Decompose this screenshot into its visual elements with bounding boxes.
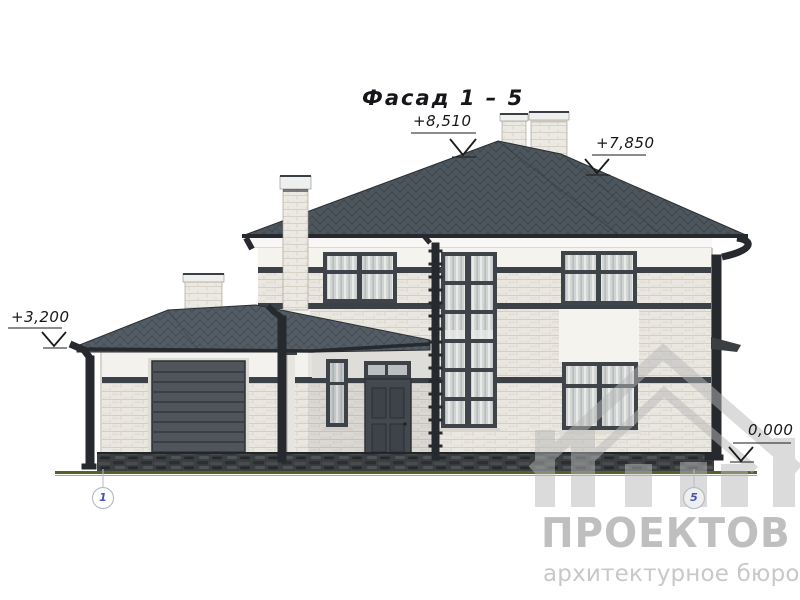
axis-marker-symbols xyxy=(93,469,705,509)
axis-label-5: 5 xyxy=(683,491,705,504)
elevation-mark-symbols xyxy=(8,133,791,462)
elevation-label-roof-peak: +8,510 xyxy=(413,112,472,130)
drawing-title: Фасад 1 – 5 xyxy=(362,86,524,110)
elevation-label-ground: 0,000 xyxy=(748,421,793,439)
elevation-label-roof-eave: +7,850 xyxy=(596,134,655,152)
axis-label-1: 1 xyxy=(92,491,114,504)
facade-drawing-canvas: ПРОЕКТОВ архитектурное бюро Фасад 1 – 5 … xyxy=(0,0,800,600)
elevation-label-wing-eave: +3,200 xyxy=(11,308,70,326)
